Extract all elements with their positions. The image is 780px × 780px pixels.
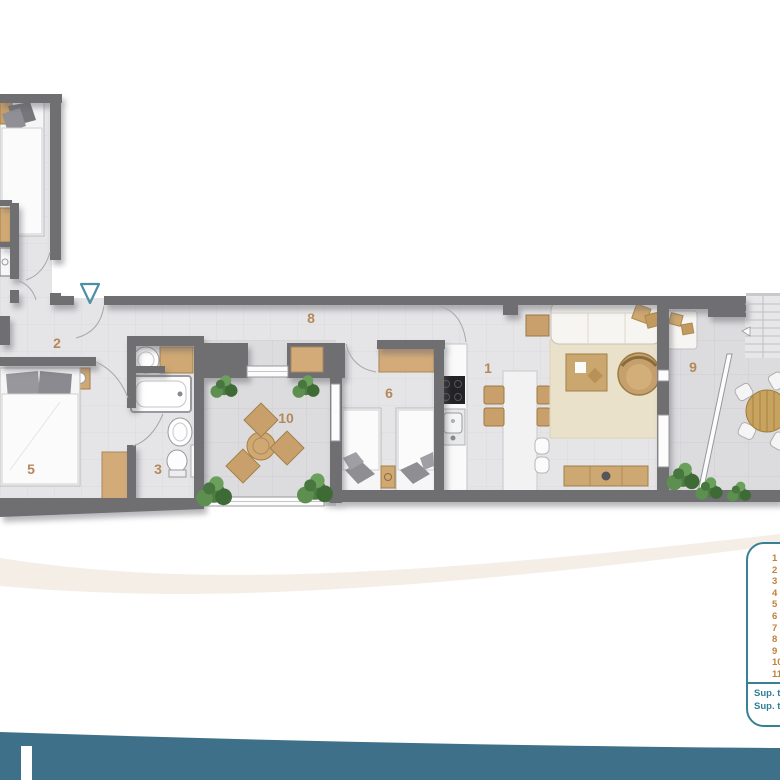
legend-item: 5 [772, 599, 780, 611]
room-label-9: 9 [689, 359, 697, 375]
legend-item: 10 [772, 657, 780, 669]
bed-double-room5 [0, 368, 80, 486]
wardrobe-room6 [379, 348, 434, 372]
legend-item: 8 [772, 634, 780, 646]
stool [535, 457, 549, 473]
legend-item: 11 [772, 669, 780, 681]
pedestal-sink [168, 418, 192, 446]
floorplan-page: 1 2 3 5 6 8 9 10 1 2 3 4 5 6 7 8 9 10 11… [0, 0, 780, 780]
room-label-10: 10 [278, 410, 294, 426]
kitchen-island [503, 371, 537, 495]
legend-totals: Sup. to Sup. to [754, 688, 780, 713]
legend-item: 6 [772, 611, 780, 623]
legend-divider [748, 682, 780, 684]
dining-chair [537, 408, 550, 426]
dining-chair [484, 386, 504, 404]
cabinet [0, 208, 11, 242]
legend-item: 3 [772, 576, 780, 588]
legend-item: 7 [772, 623, 780, 635]
nightstand [381, 466, 395, 488]
footer-logo-mark [21, 746, 32, 780]
table-deco [575, 362, 586, 373]
window-room6 [331, 384, 340, 441]
side-table [526, 315, 549, 336]
terrace-door-upper [658, 370, 669, 381]
footer-band [0, 732, 780, 780]
background-swoosh [0, 534, 780, 594]
legend-panel: 1 2 3 4 5 6 7 8 9 10 11 Sup. to Sup. to [746, 542, 780, 727]
dining-chair [484, 408, 504, 426]
floorplan-drawing: 1 2 3 5 6 8 9 10 [0, 0, 780, 780]
room-label-5: 5 [27, 461, 35, 477]
room-label-2: 2 [53, 335, 61, 351]
room-label-6: 6 [385, 385, 393, 401]
room-label-3: 3 [154, 461, 162, 477]
stool [535, 438, 549, 454]
terrace-door-lower [658, 415, 669, 467]
toilet-tank [169, 470, 186, 477]
room-label-8: 8 [307, 310, 315, 326]
corridor-closet [291, 347, 323, 372]
legend-total-line: Sup. to [754, 688, 780, 701]
legend-item: 9 [772, 646, 780, 658]
coffee-table [566, 354, 607, 391]
legend-total-line: Sup. to [754, 701, 780, 714]
wardrobe-room5 [102, 452, 130, 500]
legend-item: 2 [772, 565, 780, 577]
legend-item: 1 [772, 553, 780, 565]
dining-chair [537, 386, 550, 404]
toilet [167, 450, 187, 472]
room-label-1: 1 [484, 360, 492, 376]
legend-item: 4 [772, 588, 780, 600]
legend-number-list: 1 2 3 4 5 6 7 8 9 10 11 [748, 544, 780, 681]
